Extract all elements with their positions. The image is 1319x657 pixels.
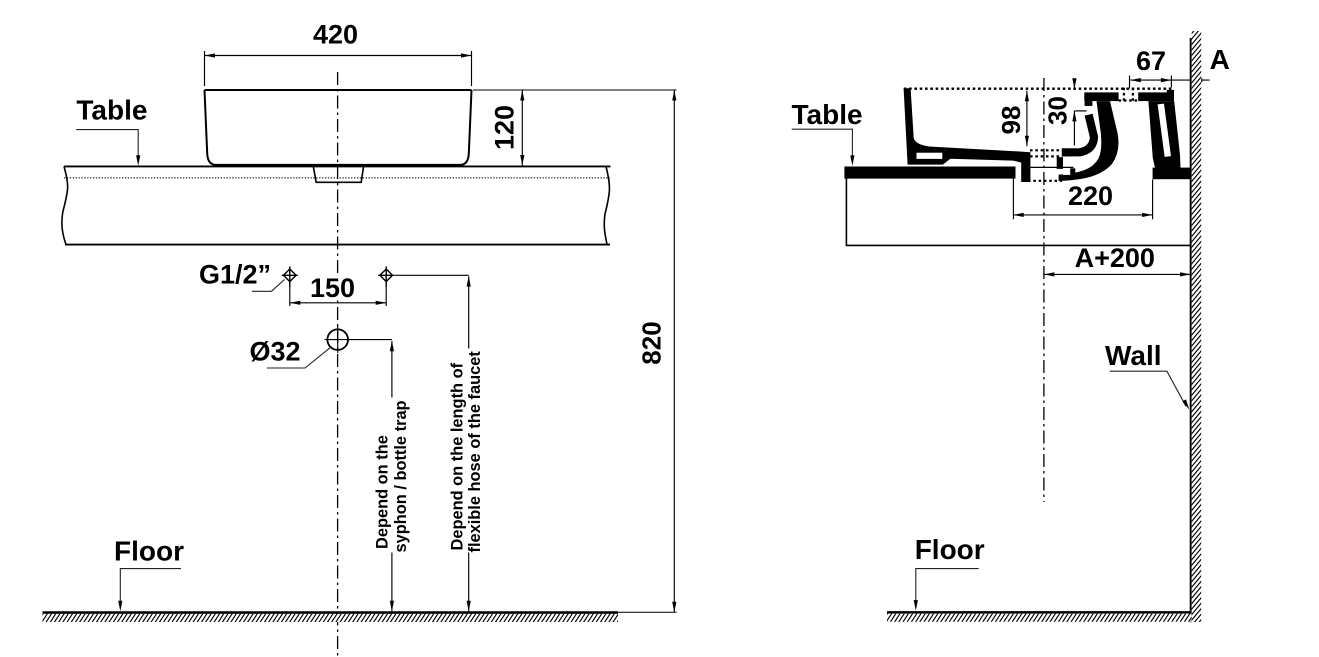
svg-text:150: 150 (310, 273, 355, 303)
svg-text:Floor: Floor (114, 536, 184, 567)
svg-text:30: 30 (1043, 96, 1073, 125)
svg-text:A: A (1210, 44, 1230, 75)
svg-text:G1/2”: G1/2” (199, 260, 271, 290)
svg-text:67: 67 (1136, 46, 1166, 76)
svg-text:420: 420 (313, 20, 358, 50)
svg-text:Table: Table (792, 99, 863, 130)
svg-text:Depend on the length of: Depend on the length of (448, 362, 466, 550)
svg-text:syphon / bottle trap: syphon / bottle trap (392, 400, 410, 552)
svg-text:flexible hose of the faucet: flexible hose of the faucet (466, 351, 484, 553)
svg-text:120: 120 (490, 105, 520, 150)
svg-text:Ø32: Ø32 (250, 337, 301, 367)
svg-text:Table: Table (76, 95, 147, 126)
svg-text:Depend on the: Depend on the (374, 435, 392, 549)
svg-text:98: 98 (996, 106, 1026, 135)
svg-text:220: 220 (1068, 181, 1113, 211)
svg-text:Wall: Wall (1105, 340, 1162, 371)
svg-text:Floor: Floor (915, 534, 985, 565)
svg-text:A+200: A+200 (1075, 243, 1155, 273)
svg-text:820: 820 (637, 321, 667, 364)
